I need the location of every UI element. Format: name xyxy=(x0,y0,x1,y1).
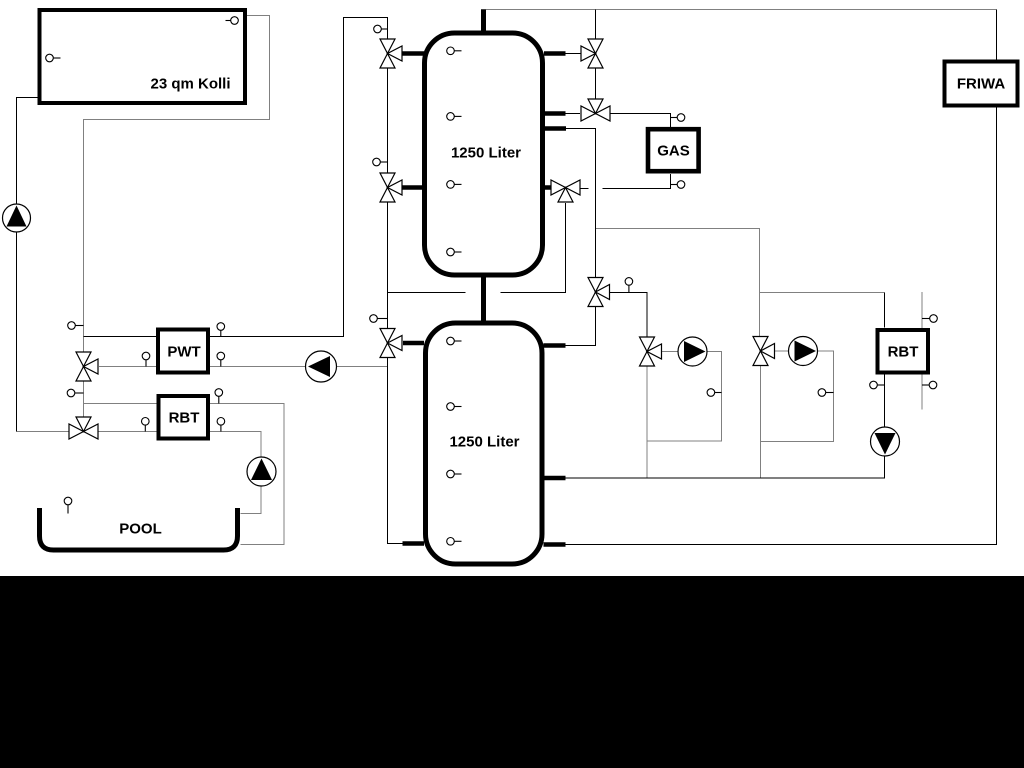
svg-text:PWT: PWT xyxy=(167,344,200,361)
svg-text:23 qm Kolli: 23 qm Kolli xyxy=(150,76,230,93)
svg-text:RBT: RBT xyxy=(888,344,919,361)
svg-text:RBT: RBT xyxy=(169,410,200,427)
svg-text:1250 Liter: 1250 Liter xyxy=(449,434,519,451)
svg-text:POOL: POOL xyxy=(119,521,162,538)
svg-text:GAS: GAS xyxy=(657,143,690,160)
svg-text:1250 Liter: 1250 Liter xyxy=(451,145,521,162)
svg-text:FRIWA: FRIWA xyxy=(957,76,1005,93)
